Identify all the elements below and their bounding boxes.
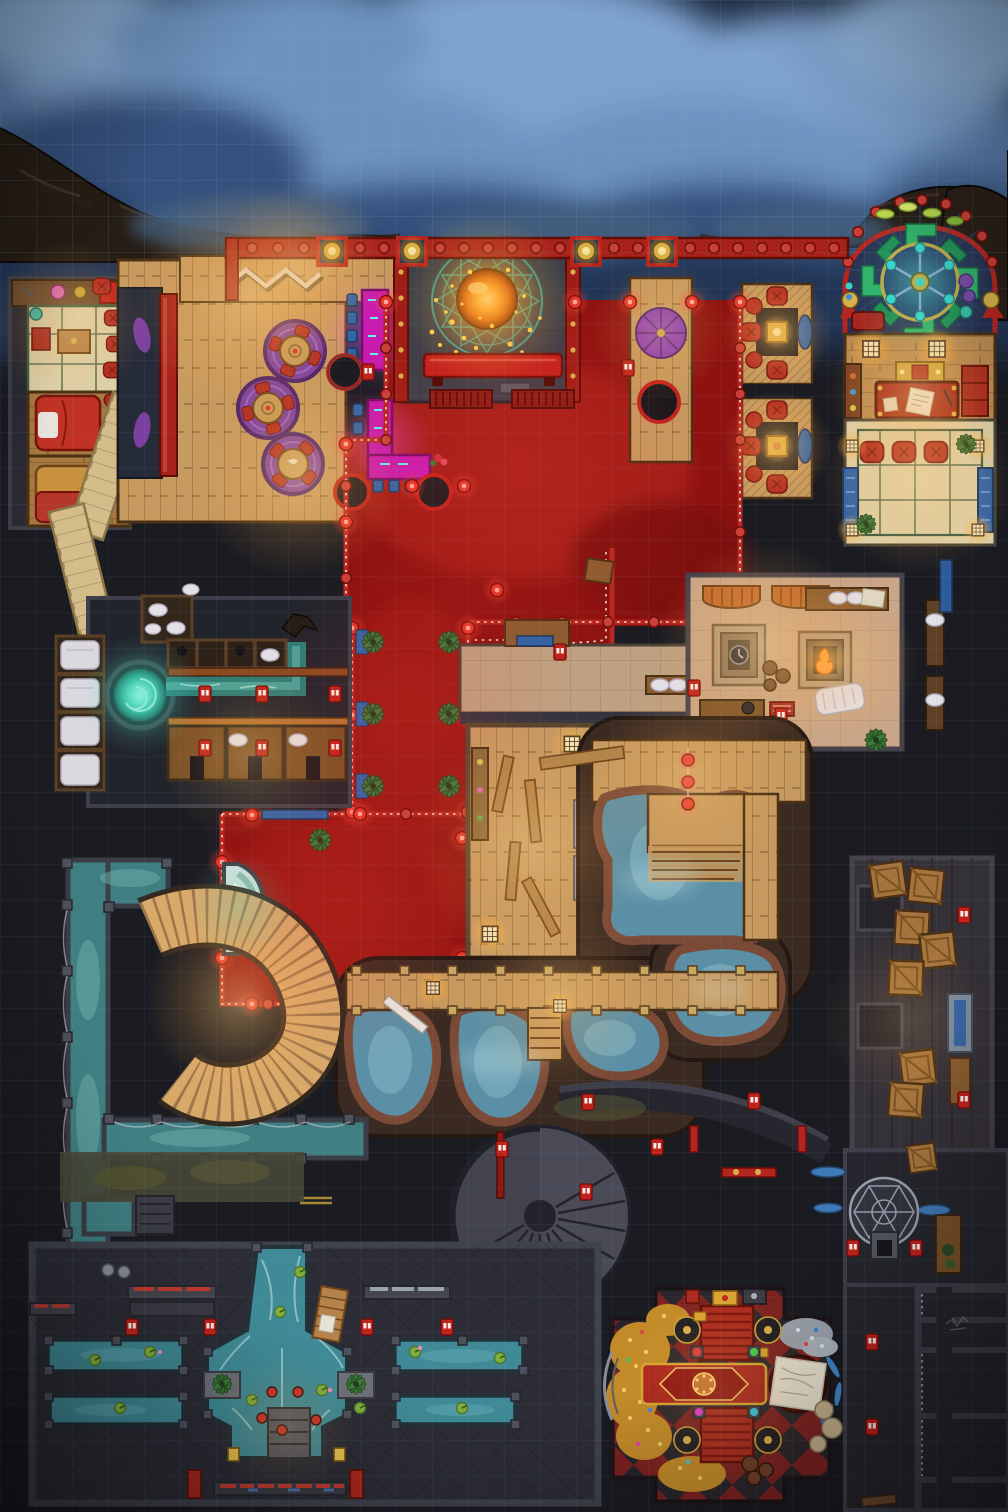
stage-frame-left — [394, 256, 408, 402]
black-table — [639, 382, 679, 422]
lantern-string — [676, 748, 700, 816]
stage-frame-right — [566, 256, 580, 402]
purple-umbrella — [636, 308, 686, 358]
battlemap-canvas — [0, 0, 1008, 1512]
grand-spiral-stair — [145, 905, 335, 1095]
office — [845, 327, 995, 420]
red-cushion — [93, 278, 111, 294]
glowing-orb — [457, 269, 517, 329]
treasure-den — [605, 1288, 843, 1502]
bath-hall — [30, 1243, 598, 1503]
changing-stalls — [56, 584, 350, 806]
bar-counter — [160, 294, 177, 476]
prison-cells — [845, 1285, 1008, 1510]
battlemap-image — [0, 0, 1008, 1512]
red-bench — [424, 354, 562, 377]
fire-pit-burning — [799, 632, 851, 688]
fire-pit-clock — [713, 625, 765, 685]
bar-interior — [118, 288, 162, 478]
pink-pot — [51, 285, 65, 299]
center-rug — [642, 1364, 766, 1404]
vip-booths — [741, 284, 812, 498]
tatami-lounge — [836, 420, 995, 546]
water-trough — [262, 810, 328, 819]
